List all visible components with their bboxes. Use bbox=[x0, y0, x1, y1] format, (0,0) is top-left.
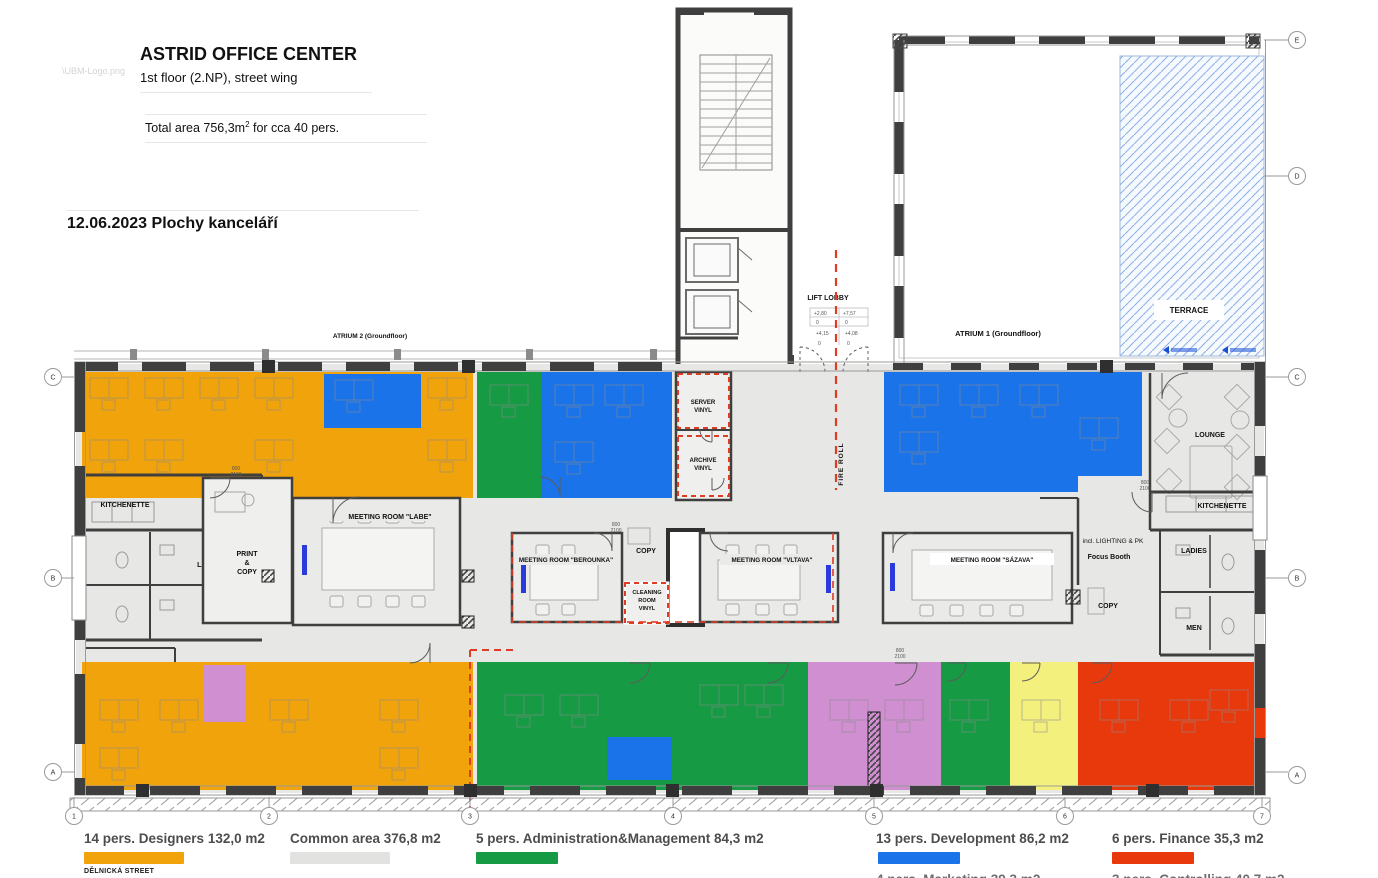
svg-text:B: B bbox=[51, 576, 56, 583]
zone-designers-bottom bbox=[82, 662, 473, 790]
svg-text:ROOM: ROOM bbox=[638, 598, 656, 604]
zone-controlling-room bbox=[1010, 662, 1078, 790]
vltava-label: MEETING ROOM "VLTAVA" bbox=[731, 557, 812, 564]
kitchenette-left-label: KITCHENETTE bbox=[101, 502, 150, 509]
print-copy-room: PRINT & COPY bbox=[203, 478, 292, 623]
meeting-room-berounka: MEETING ROOM "BEROUNKA" bbox=[512, 533, 622, 622]
svg-text:0: 0 bbox=[818, 341, 821, 347]
terrace-label: TERRACE bbox=[1170, 306, 1209, 315]
lift-lobby-label: LIFT LOBBY bbox=[807, 295, 849, 302]
svg-text:VINYL: VINYL bbox=[694, 408, 712, 414]
atrium2-label: ATRIUM 2 (Groundfloor) bbox=[333, 333, 407, 340]
svg-text:5: 5 bbox=[872, 814, 876, 821]
svg-text:D: D bbox=[1294, 174, 1299, 181]
svg-text:+2,80: +2,80 bbox=[814, 311, 827, 317]
legend-finance-swatch bbox=[1112, 852, 1194, 864]
legend-common-label: Common area 376,8 m2 bbox=[290, 831, 441, 846]
svg-text:0: 0 bbox=[845, 320, 848, 326]
svg-text:0: 0 bbox=[816, 320, 819, 326]
zone-development-right-office-ext bbox=[884, 476, 1078, 492]
lounge-label: LOUNGE bbox=[1195, 432, 1225, 439]
svg-text:SERVER: SERVER bbox=[691, 400, 716, 406]
zone-development-right-office bbox=[884, 372, 1142, 476]
legend-common-swatch bbox=[290, 852, 390, 864]
svg-text:1: 1 bbox=[72, 814, 76, 821]
legend-designers-label: 14 pers. Designers 132,0 m2 bbox=[84, 831, 265, 846]
svg-text:2: 2 bbox=[267, 814, 271, 821]
svg-text:PRINT: PRINT bbox=[237, 551, 259, 558]
berounka-label: MEETING ROOM "BEROUNKA" bbox=[519, 557, 613, 564]
legend-controlling-label: 3 pers. Controlling 40,7 m2 bbox=[1112, 872, 1285, 878]
svg-text:VINYL: VINYL bbox=[639, 606, 656, 612]
kitchenette-right-label: KITCHENETTE bbox=[1198, 503, 1247, 510]
meeting-room-sazava: MEETING ROOM "SÁZAVA" bbox=[883, 533, 1080, 623]
svg-text:6: 6 bbox=[1063, 814, 1067, 821]
svg-text:0: 0 bbox=[847, 341, 850, 347]
atrium1-label: ATRIUM 1 (Groundfloor) bbox=[955, 329, 1041, 338]
svg-text:+7,57: +7,57 bbox=[843, 311, 856, 317]
cleaning-room: CLEANING ROOM VINYL bbox=[625, 583, 668, 623]
server-archive-rooms: SERVER VINYL ARCHIVE VINYL bbox=[676, 372, 731, 500]
lighting-note: incl. LIGHTING & PK bbox=[1083, 538, 1144, 545]
svg-text:C: C bbox=[50, 375, 55, 382]
zone-development-top-office bbox=[541, 372, 672, 498]
svg-text:CLEANING: CLEANING bbox=[632, 590, 661, 596]
floor-plan-drawing: TERRACE ATRIUM 1 (Groundfloor) ATRIUM 2 … bbox=[0, 0, 1378, 878]
svg-text:E: E bbox=[1295, 38, 1300, 45]
ladies-right-label: LADIES bbox=[1181, 548, 1207, 555]
svg-text:2100: 2100 bbox=[894, 654, 905, 660]
zone-marketing-inset-bottom-left bbox=[203, 665, 245, 722]
svg-text:+4,15: +4,15 bbox=[816, 331, 829, 337]
legend-development-label: 13 pers. Development 86,2 m2 bbox=[876, 831, 1069, 846]
svg-text:2100: 2100 bbox=[1139, 486, 1150, 492]
svg-text:C: C bbox=[1294, 375, 1299, 382]
floor-plan-page: \UBM-Logo.png ASTRID OFFICE CENTER 1st f… bbox=[0, 0, 1378, 878]
svg-text:A: A bbox=[51, 770, 56, 777]
focus-booth-label: Focus Booth bbox=[1088, 554, 1131, 561]
legend-admin-label: 5 pers. Administration&Management 84,3 m… bbox=[476, 831, 764, 846]
svg-text:2100: 2100 bbox=[230, 472, 241, 478]
legend-admin-swatch bbox=[476, 852, 558, 864]
meeting-room-vltava: MEETING ROOM "VLTAVA" bbox=[700, 533, 838, 622]
core-stair-tower bbox=[676, 8, 790, 372]
legend-finance-label: 6 pers. Finance 35,3 m2 bbox=[1112, 831, 1264, 846]
copy-right-label: COPY bbox=[1098, 603, 1118, 610]
sazava-label: MEETING ROOM "SÁZAVA" bbox=[951, 555, 1034, 564]
svg-text:ARCHIVE: ARCHIVE bbox=[689, 458, 716, 464]
svg-text:4: 4 bbox=[671, 814, 675, 821]
men-right-label: MEN bbox=[1186, 625, 1202, 632]
copy-center-label: COPY bbox=[636, 548, 656, 555]
street-label: DĚLNICKÁ STREET bbox=[84, 868, 154, 875]
svg-text:+4,08: +4,08 bbox=[845, 331, 858, 337]
svg-text:B: B bbox=[1295, 576, 1300, 583]
svg-text:A: A bbox=[1295, 773, 1300, 780]
zone-development-inset-bottom bbox=[607, 737, 672, 780]
atrium2-facade bbox=[74, 349, 676, 360]
svg-text:7: 7 bbox=[1260, 814, 1264, 821]
fire-roll-label: FIRE ROLL bbox=[838, 442, 845, 485]
zone-finance-room bbox=[1078, 662, 1265, 790]
svg-text:VINYL: VINYL bbox=[694, 466, 712, 472]
svg-text:2100: 2100 bbox=[610, 528, 621, 534]
legend-marketing-label: 4 pers. Marketing 39,3 m2 bbox=[876, 872, 1040, 878]
legend-designers-swatch bbox=[84, 852, 184, 864]
svg-text:3: 3 bbox=[468, 814, 472, 821]
svg-text:COPY: COPY bbox=[237, 569, 257, 576]
terrace: TERRACE bbox=[1120, 56, 1264, 356]
meeting-room-labe: MEETING ROOM "LABE" bbox=[293, 498, 460, 625]
lift-lobby: LIFT LOBBY +2,80 +7,57 0 0 +4,15 +4,08 0… bbox=[792, 295, 868, 372]
legend-development-swatch bbox=[878, 852, 960, 864]
labe-label: MEETING ROOM "LABE" bbox=[348, 514, 431, 521]
svg-text:&: & bbox=[244, 560, 249, 567]
